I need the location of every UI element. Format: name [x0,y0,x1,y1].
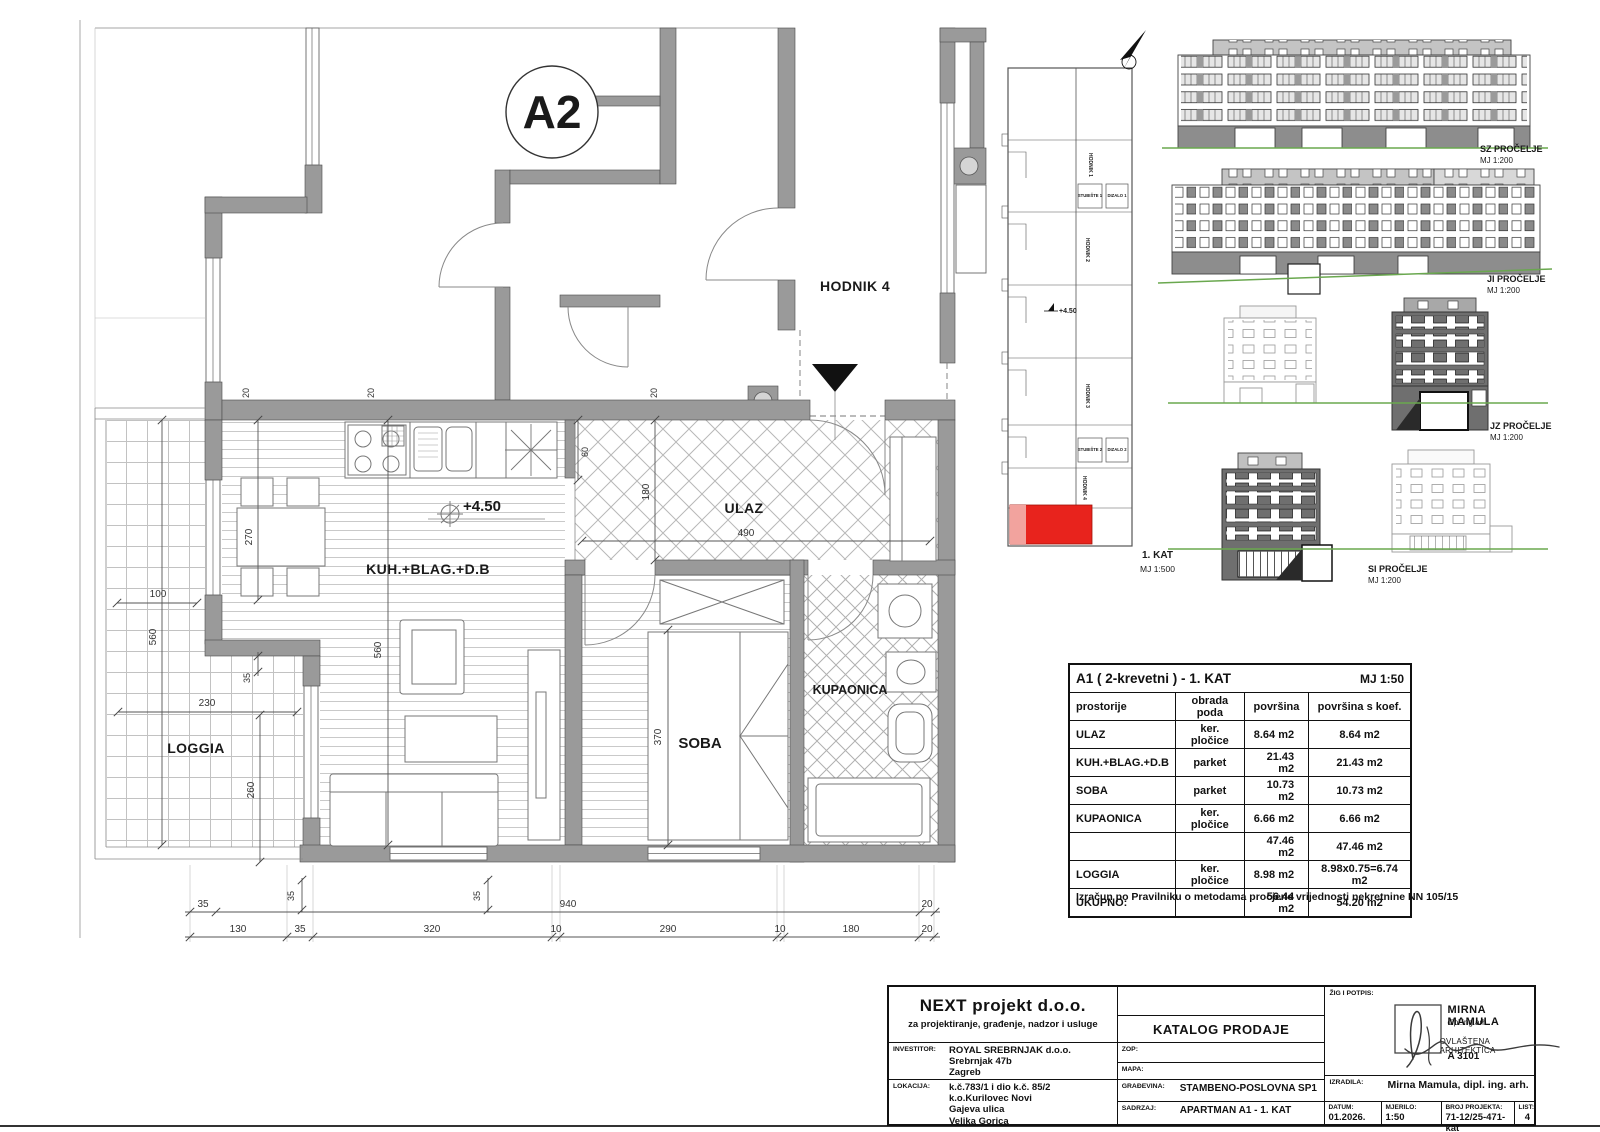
cell: KUPAONICA [1069,805,1175,833]
dim: 20 [921,924,933,935]
shower [808,778,930,842]
mjerilo-value: 1:50 [1385,1112,1441,1123]
sink [886,652,936,692]
mjerilo-label: MJERILO: [1385,1104,1441,1111]
broj-value: 71-12/25-471-kat [1445,1112,1514,1132]
investitor-value: ROYAL SREBRNJAK d.o.o. Srebrnjak 47b Zag… [943,1043,1117,1079]
cell: 8.98 m2 [1244,861,1308,889]
sadrzaj-value: APARTMAN A1 - 1. KAT [1176,1102,1325,1124]
keyplan-level: +4.50 [1059,308,1077,315]
dim: 260 [246,781,257,798]
stamp-area: MIRNA MAMULA dipl.ing.arh. OVLAŠTENA ARH… [1383,987,1534,1075]
table-title: A1 ( 2-krevetni ) - 1. KAT [1076,671,1231,686]
cell: ker. pločice [1175,805,1244,833]
elevation-sz-label: SZ PROČELJE [1480,143,1543,154]
dim: 20 [241,388,251,398]
dim: 180 [641,483,652,500]
fixture-symbol [505,424,557,476]
dim: 20 [366,388,376,398]
table-scale: MJ 1:50 [1360,672,1404,686]
lokacija-label: LOKACIJA: [889,1080,943,1124]
cell [1175,833,1244,861]
room-label-kupaonica: KUPAONICA [813,683,888,697]
cell: 6.66 m2 [1244,805,1308,833]
keyplan-hodnik3: HODNIK 3 [1084,384,1090,408]
company-subtitle: za projektiranje, građenje, nadzor i usl… [889,1019,1117,1030]
cell: ker. pločice [1175,721,1244,749]
elevation-ji-label: JI PROČELJE [1487,273,1546,284]
room-label-soba: SOBA [678,735,722,752]
col-header: površina s koef. [1309,693,1411,721]
dim: 35 [197,899,209,910]
investitor-label: INVESTITOR: [889,1043,943,1079]
dim: 35 [472,891,482,901]
lokacija-value: k.č.783/1 i dio k.č. 85/2 k.o.Kurilovec … [943,1080,1117,1124]
dim: 35 [294,924,306,935]
floor-ulaz-tiles [575,420,938,560]
cell: LOGGIA [1069,861,1175,889]
dim: 320 [424,924,441,935]
elevation-sz-scale: MJ 1:200 [1480,156,1513,165]
cell: ULAZ [1069,721,1175,749]
table-header-row: prostorije obrada poda površina površina… [1069,693,1411,721]
datum-cell: DATUM:01.2026. [1325,1102,1382,1124]
dim: 370 [653,728,664,745]
datum-label: DATUM: [1328,1104,1381,1111]
list-value: 4 [1518,1112,1534,1123]
broj-projekta-cell: BROJ PROJEKTA:71-12/25-471-kat [1442,1102,1515,1124]
room-label-ulaz: ULAZ [725,500,764,516]
zig-label: ŽIG I POTPIS: [1325,987,1383,1075]
dim: 940 [560,899,577,910]
list-label: LIST: [1518,1104,1534,1111]
cell: 8.64 m2 [1244,721,1308,749]
dim: 560 [148,628,159,645]
room-label-hodnik4: HODNIK 4 [820,278,890,294]
dim: 270 [244,528,255,545]
toilet [888,704,932,762]
keyplan-hodnik2: HODNIK 2 [1084,238,1090,262]
room-label-loggia: LOGGIA [167,740,225,756]
keyplan-hodnik1: HODNIK 1 [1087,153,1093,177]
dim: 290 [660,924,677,935]
cell: SOBA [1069,777,1175,805]
dim: 20 [921,899,933,910]
dim: 490 [738,528,755,539]
katalog-title: KATALOG PRODAJE [1118,1015,1325,1042]
table-row: KUH.+BLAG.+D.Bparket21.43 m221.43 m2 [1069,749,1411,777]
title-block: NEXT projekt d.o.o. za projektiranje, gr… [887,985,1536,1126]
floor-plan-drawing: A2 HODNIK 4 ULAZ KUH.+BLAG.+D.B SOBA KUP… [0,0,1600,1132]
cell: parket [1175,777,1244,805]
elevation-si-label: SI PROČELJE [1368,563,1428,574]
cell: 10.73 m2 [1309,777,1411,805]
drawing-sheet: A2 HODNIK 4 ULAZ KUH.+BLAG.+D.B SOBA KUP… [0,0,1600,1132]
cell: KUH.+BLAG.+D.B [1069,749,1175,777]
dim: 10 [550,924,562,935]
datum-value: 01.2026. [1328,1112,1381,1123]
investitor-line: Zagreb [949,1067,1117,1078]
dim: 560 [373,641,384,658]
company-name: NEXT projekt d.o.o. [889,996,1117,1016]
dim: 10 [774,924,786,935]
cell: 10.73 m2 [1244,777,1308,805]
context-doors [439,208,778,367]
bedroom-furniture [648,580,788,840]
washing-machine [878,584,932,638]
keyplan-floor: 1. KAT [1142,550,1173,561]
elevation-ji-scale: MJ 1:200 [1487,286,1520,295]
lokacija-line: k.o.Kurilovec Novi [949,1093,1117,1104]
table-row: SOBAparket10.73 m210.73 m2 [1069,777,1411,805]
elevation-si-scale: MJ 1:200 [1368,576,1401,585]
table-row-subtotal: 47.46 m247.46 m2 [1069,833,1411,861]
unit-badge: A2 [523,86,582,138]
elevation-ji: JI PROČELJE MJ 1:200 [1158,169,1552,295]
broj-label: BROJ PROJEKTA: [1445,1104,1514,1111]
keyplan-hodnik4: HODNIK 4 [1081,476,1087,500]
keyplan-dizalo2: DIZALO 2 [1107,447,1127,452]
level-value: +4.50 [463,498,501,515]
elevation-jz: JZ PROČELJE MJ 1:200 [1168,298,1552,442]
investitor-line: Srebrnjak 47b [949,1056,1117,1067]
zop-label: ZOP: [1118,1043,1176,1062]
cell: 8.64 m2 [1309,721,1411,749]
table-row: LOGGIAker. pločice8.98 m28.98x0.75=6.74 … [1069,861,1411,889]
keyplan-stubiste1: STUBIŠTE 1 [1078,193,1103,198]
elevation-sz: SZ PROČELJE MJ 1:200 [1162,40,1548,165]
entry-arrow [812,364,858,392]
area-table: A1 ( 2-krevetni ) - 1. KAT MJ 1:50 prost… [1068,663,1412,918]
col-header: površina [1244,693,1308,721]
izradila-value: Mirna Mamula, dipl. ing. arh. [1383,1076,1534,1101]
col-header: obrada poda [1175,693,1244,721]
cell [1069,833,1175,861]
signature-icon [1383,987,1593,1073]
key-plan: HODNIK 1 STUBIŠTE 1 DIZALO 1 HODNIK 2 HO… [1002,68,1175,574]
cell: 21.43 m2 [1244,749,1308,777]
investitor-line: ROYAL SREBRNJAK d.o.o. [949,1045,1117,1056]
cell: 6.66 m2 [1309,805,1411,833]
cell: parket [1175,749,1244,777]
kitchen-counter [345,422,557,478]
col-header: prostorije [1069,693,1175,721]
lokacija-line: Gajeva ulica [949,1104,1117,1115]
table-row: KUPAONICAker. pločice6.66 m26.66 m2 [1069,805,1411,833]
cell: 21.43 m2 [1309,749,1411,777]
dim: 35 [286,891,296,901]
lokacija-line: Velika Gorica [949,1116,1117,1127]
calculation-note: Izračun po Pravilniku o metodama procjen… [1076,891,1546,903]
keyplan-scale: MJ 1:500 [1140,564,1175,574]
gradevina-label: GRAĐEVINA: [1118,1080,1176,1101]
dim: 35 [242,673,252,683]
room-label-kuh: KUH.+BLAG.+D.B [366,561,490,577]
cell: 47.46 m2 [1244,833,1308,861]
izradila-label: IZRADILA: [1325,1076,1383,1101]
gradevina-value: STAMBENO-POSLOVNA SP1 [1176,1080,1325,1101]
cell: 8.98x0.75=6.74 m2 [1309,861,1411,889]
cell: 47.46 m2 [1309,833,1411,861]
list-cell: LIST:4 [1515,1102,1534,1124]
table-row: ULAZker. pločice8.64 m28.64 m2 [1069,721,1411,749]
mapa-label: MAPA: [1118,1063,1176,1079]
dim: 180 [843,924,860,935]
north-arrow-icon [1120,30,1146,70]
sadrzaj-label: SADRZAJ: [1118,1102,1176,1124]
mjerilo-cell: MJERILO:1:50 [1382,1102,1442,1124]
keyplan-stubiste2: STUBIŠTE 2 [1078,447,1103,452]
dim: 230 [199,698,216,709]
elevation-jz-label: JZ PROČELJE [1490,420,1552,431]
elevation-jz-scale: MJ 1:200 [1490,433,1523,442]
dim: 100 [150,589,167,600]
dim: 60 [580,447,590,457]
dim: 130 [230,924,247,935]
elevation-si: SI PROČELJE MJ 1:200 [1168,450,1548,585]
lokacija-line: k.č.783/1 i dio k.č. 85/2 [949,1082,1117,1093]
keyplan-dizalo1: DIZALO 1 [1107,193,1127,198]
dim: 20 [649,388,659,398]
cell: ker. pločice [1175,861,1244,889]
table-title-cell: A1 ( 2-krevetni ) - 1. KAT MJ 1:50 [1069,664,1411,693]
